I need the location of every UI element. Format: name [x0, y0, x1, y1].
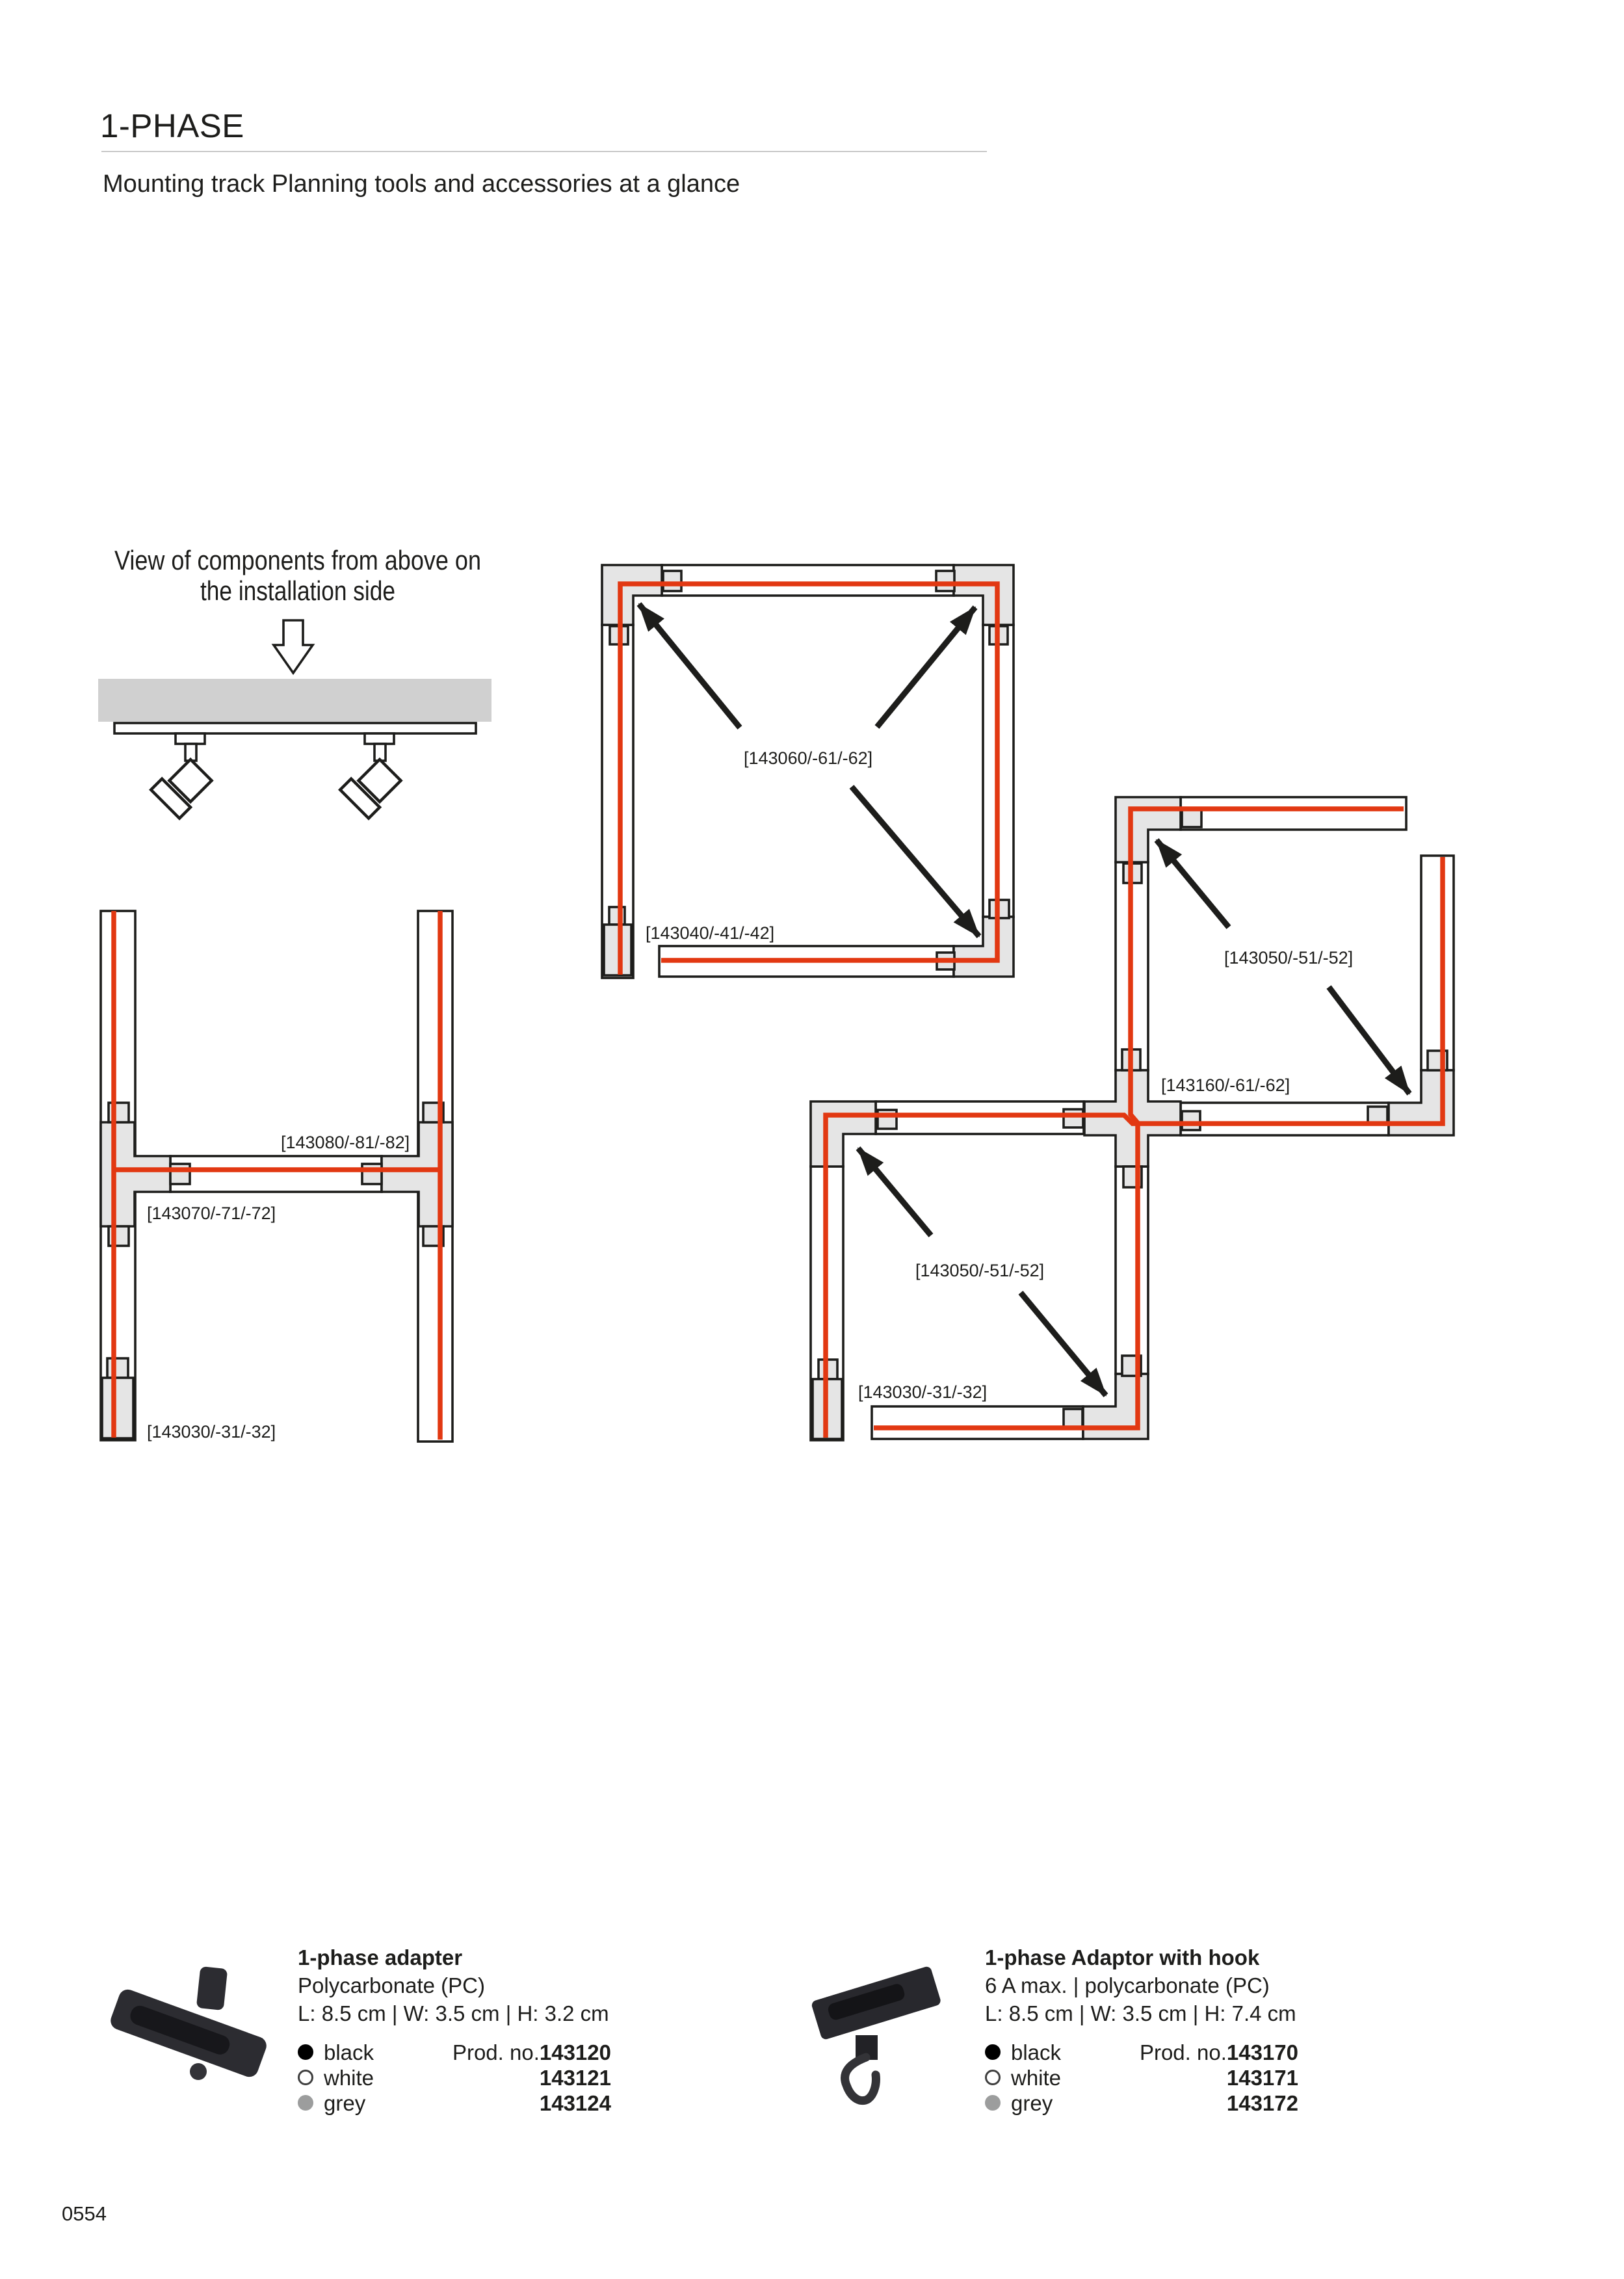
svg-text:[143030/-31/-32]: [143030/-31/-32]	[858, 1382, 987, 1402]
svg-text:the installation side: the installation side	[200, 575, 395, 606]
svg-text:[143050/-51/-52]: [143050/-51/-52]	[1224, 948, 1353, 968]
svg-text:[143050/-51/-52]: [143050/-51/-52]	[915, 1261, 1044, 1280]
svg-text:[143040/-41/-42]: [143040/-41/-42]	[646, 923, 774, 943]
svg-text:[143160/-61/-62]: [143160/-61/-62]	[1161, 1075, 1290, 1095]
svg-text:[143060/-61/-62]: [143060/-61/-62]	[744, 748, 872, 768]
svg-text:View of components from above: View of components from above on	[114, 545, 481, 575]
svg-text:[143030/-31/-32]: [143030/-31/-32]	[147, 1422, 276, 1442]
svg-text:[143070/-71/-72]: [143070/-71/-72]	[147, 1204, 276, 1223]
svg-text:[143080/-81/-82]: [143080/-81/-82]	[281, 1133, 410, 1152]
